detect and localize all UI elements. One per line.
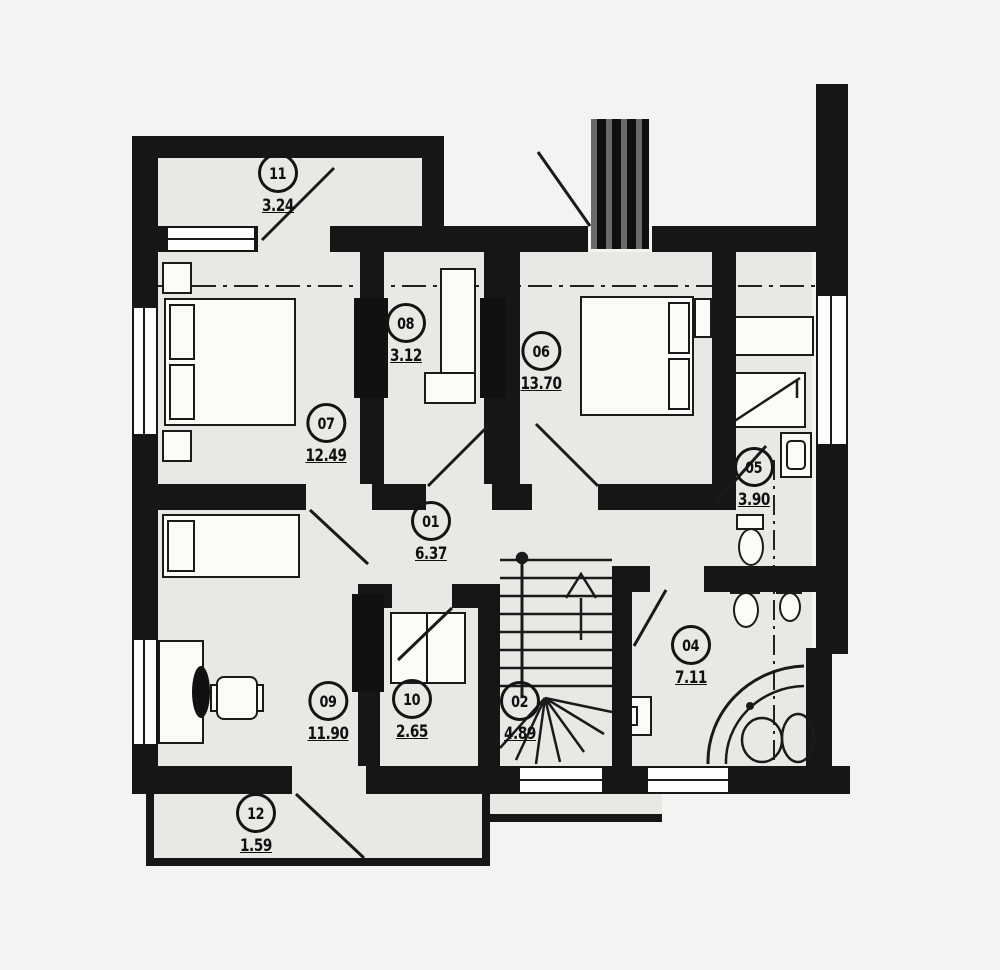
door-opening-balcony12: [292, 766, 366, 794]
room-label-10: 10 2.65: [392, 679, 432, 742]
wardrobe-10: [390, 612, 466, 684]
room-number-badge-10: 10: [392, 679, 432, 719]
wall-balcony12-right: [482, 794, 490, 866]
room-number-12: 12: [247, 804, 264, 823]
room-label-04: 04 7.11: [671, 625, 711, 688]
window-right-room06-frame: [830, 296, 832, 444]
door-leaf-07-08: [354, 298, 388, 398]
wall-10-stairs: [478, 584, 500, 766]
room-label-11: 11 3.24: [258, 153, 298, 216]
window-balcony11-frame: [168, 238, 254, 240]
room-number-badge-06: 06: [521, 331, 561, 371]
room-label-02-stairs: 02 4.89: [500, 681, 540, 744]
room-number-badge-08: 08: [386, 303, 426, 343]
room-number-badge-12: 12: [236, 793, 276, 833]
wall-balcony12-bottom: [146, 858, 490, 866]
room-area-07: 12.49: [305, 446, 346, 466]
window-bottom-2-frame: [648, 779, 728, 781]
door-swing-top-right: [538, 152, 590, 226]
pillow-07-b: [169, 364, 195, 420]
room-number-06: 06: [532, 342, 549, 361]
room-number-08: 08: [397, 314, 414, 333]
room-number-07: 07: [317, 414, 334, 433]
room-number-badge-09: 09: [308, 681, 348, 721]
room-label-09: 09 11.90: [302, 681, 353, 744]
window-left-room09: [134, 640, 156, 744]
room-number-badge-02: 02: [500, 681, 540, 721]
pillow-06-b: [668, 358, 690, 410]
vent-shaft: [588, 116, 652, 252]
room-label-05: 05 3.90: [734, 447, 774, 510]
wardrobe-08-tall: [440, 268, 476, 388]
room-number-09: 09: [319, 692, 336, 711]
room-number-badge-07: 07: [306, 403, 346, 443]
desk-chair-09: [192, 666, 210, 718]
room-number-10: 10: [403, 690, 420, 709]
room-number-01: 01: [422, 512, 439, 531]
room-area-10: 2.65: [396, 722, 428, 742]
window-left-room07-frame: [143, 308, 145, 434]
room-number-05: 05: [745, 458, 762, 477]
door-opening-04: [650, 566, 704, 592]
wall-top-room04: [612, 566, 848, 592]
floor-balcony-12: [150, 794, 482, 860]
room-number-badge-01: 01: [411, 501, 451, 541]
floor-plan: 11 3.24 07 12.49 08 3.12 06 13.70 05 3.9…: [0, 0, 1000, 970]
room-number-04: 04: [682, 636, 699, 655]
room-label-06: 06 13.70: [515, 331, 566, 394]
toilet-04-bowl: [733, 592, 759, 628]
door-opening-10: [392, 584, 452, 608]
chair-09: [216, 676, 258, 720]
room-area-09: 11.90: [307, 724, 348, 744]
room-number-11: 11: [269, 164, 286, 183]
wall-landing-stub: [486, 814, 662, 822]
wall-balcony12-left: [146, 794, 154, 866]
room-number-badge-05: 05: [734, 447, 774, 487]
window-right-room06: [818, 296, 846, 444]
window-left-room09-frame: [143, 640, 145, 744]
nightstand-07-b: [162, 430, 192, 462]
wall-06-05: [712, 250, 736, 484]
nightstand-06: [694, 298, 712, 338]
room-area-11: 3.24: [262, 196, 294, 216]
room-number-badge-04: 04: [671, 625, 711, 665]
wall-bottom: [132, 766, 850, 794]
room-area-02: 4.89: [504, 724, 536, 744]
washbasin-05-bowl: [786, 440, 806, 470]
room-label-08: 08 3.12: [386, 303, 426, 366]
room-number-badge-11: 11: [258, 153, 298, 193]
pillow-06-a: [668, 302, 690, 354]
room-label-01: 01 6.37: [411, 501, 451, 564]
door-opening-balcony11: [258, 226, 330, 252]
shelf-05: [734, 316, 814, 356]
wardrobe-10-divider: [426, 614, 428, 682]
window-left-room07: [134, 308, 156, 434]
window-bottom-1-frame: [520, 779, 602, 781]
room-area-05: 3.90: [738, 490, 770, 510]
room-area-08: 3.12: [390, 346, 422, 366]
floor-landing: [486, 794, 662, 816]
wardrobe-08-low: [424, 372, 476, 404]
room-area-12: 1.59: [240, 836, 272, 856]
room-area-01: 6.37: [415, 544, 447, 564]
bidet-04-bowl: [779, 592, 801, 622]
room-label-07: 07 12.49: [300, 403, 351, 466]
door-opening-06: [532, 484, 598, 510]
room-number-02: 02: [511, 692, 528, 711]
nightstand-07-a: [162, 262, 192, 294]
door-opening-09: [306, 484, 372, 510]
toilet-05-bowl: [738, 528, 764, 566]
room-area-06: 13.70: [520, 374, 561, 394]
door-leaf-08-06: [480, 298, 506, 398]
wall-stairs-04: [612, 592, 632, 766]
shower-tray-05: [726, 372, 806, 428]
pillow-07-a: [169, 304, 195, 360]
room-area-04: 7.11: [675, 668, 707, 688]
door-leaf-09-10: [352, 594, 384, 692]
pillow-09: [167, 520, 195, 572]
room-label-12: 12 1.59: [236, 793, 276, 856]
